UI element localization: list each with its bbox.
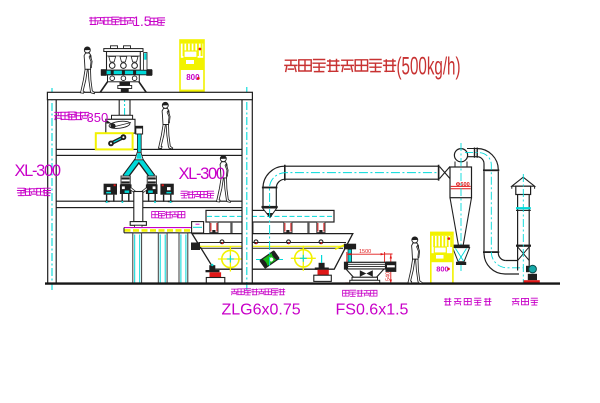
svg-text:1500: 1500 bbox=[359, 249, 371, 255]
svg-text:ZLG6x0.75: ZLG6x0.75 bbox=[222, 302, 301, 319]
svg-text:FS0.6x1.5: FS0.6x1.5 bbox=[336, 302, 409, 319]
svg-text:XL-300: XL-300 bbox=[179, 165, 226, 183]
svg-text:540: 540 bbox=[386, 272, 392, 281]
svg-text:350: 350 bbox=[87, 110, 109, 125]
svg-text:XL-300: XL-300 bbox=[15, 162, 62, 180]
svg-text:1.5: 1.5 bbox=[133, 14, 152, 29]
svg-text:Φ600: Φ600 bbox=[456, 182, 470, 188]
svg-text:800: 800 bbox=[436, 265, 449, 274]
svg-text:(500kg/h): (500kg/h) bbox=[397, 53, 461, 81]
